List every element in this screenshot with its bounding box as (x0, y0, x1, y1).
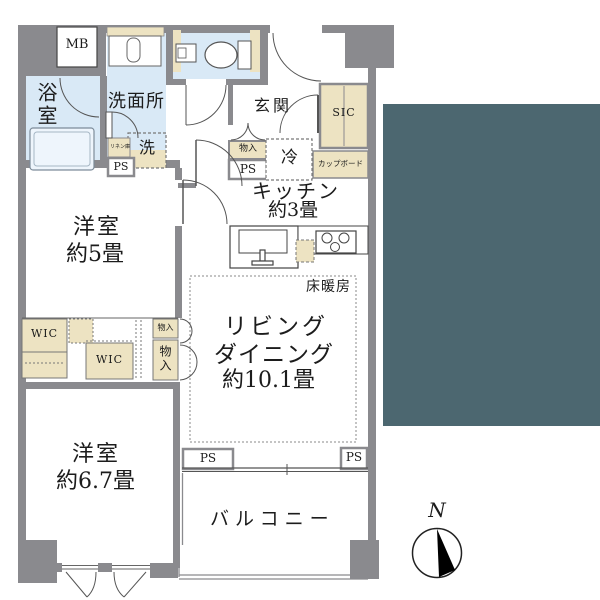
label-kitchen: キッチン (252, 181, 340, 201)
bathtub-icon (30, 128, 94, 170)
label-western-room2: 洋室 (72, 444, 120, 466)
label-ps-ld-left: PS (183, 452, 233, 464)
kitchen-counter (230, 226, 368, 268)
label-cupboard: カップボード (313, 160, 368, 168)
label-bathroom: 浴室 (36, 82, 56, 128)
label-balcony: バルコニー (210, 510, 335, 529)
label-washroom: 洗面所 (108, 93, 165, 111)
label-storage-entrance: 物入 (229, 145, 267, 154)
label-dining: ダイニング (214, 344, 334, 367)
label-storage-small: 物入 (153, 324, 178, 332)
label-washer: 洗 (139, 140, 155, 156)
label-wic-center: WIC (86, 354, 133, 365)
stove-icon (316, 231, 356, 253)
vanity-sink-icon (107, 27, 164, 66)
label-floor-heating: 床暖房 (306, 280, 351, 294)
label-ps-entrance: PS (229, 163, 267, 175)
label-western-room1: 洋室 (73, 217, 121, 239)
label-storage-vertical: 物入 (159, 345, 171, 373)
label-ps-washroom: PS (108, 161, 134, 172)
label-western-room1-size: 約5畳 (66, 244, 124, 266)
label-meter-box: MB (57, 38, 97, 51)
label-shoe-closet: SIC (320, 107, 368, 118)
label-linen-shelf: リネン庫 (110, 145, 130, 150)
masked-overlay (383, 104, 600, 426)
label-kitchen-size: 約3畳 (268, 201, 318, 220)
label-ps-ld-right: PS (341, 451, 367, 463)
label-living: リビング (224, 316, 328, 339)
floor-plan-canvas: MB 浴室 洗面所 洗 リネン庫 PS 玄関 SIC カップボード 物入 PS … (0, 0, 600, 600)
label-living-size: 約10.1畳 (222, 370, 315, 392)
compass (413, 529, 462, 578)
label-western-room2-size: 約6.7畳 (56, 471, 135, 493)
label-wic-left: WIC (22, 328, 67, 339)
label-refrigerator: 冷 (281, 150, 298, 167)
label-entrance: 玄関 (254, 98, 292, 114)
label-compass-north: N (425, 500, 449, 520)
